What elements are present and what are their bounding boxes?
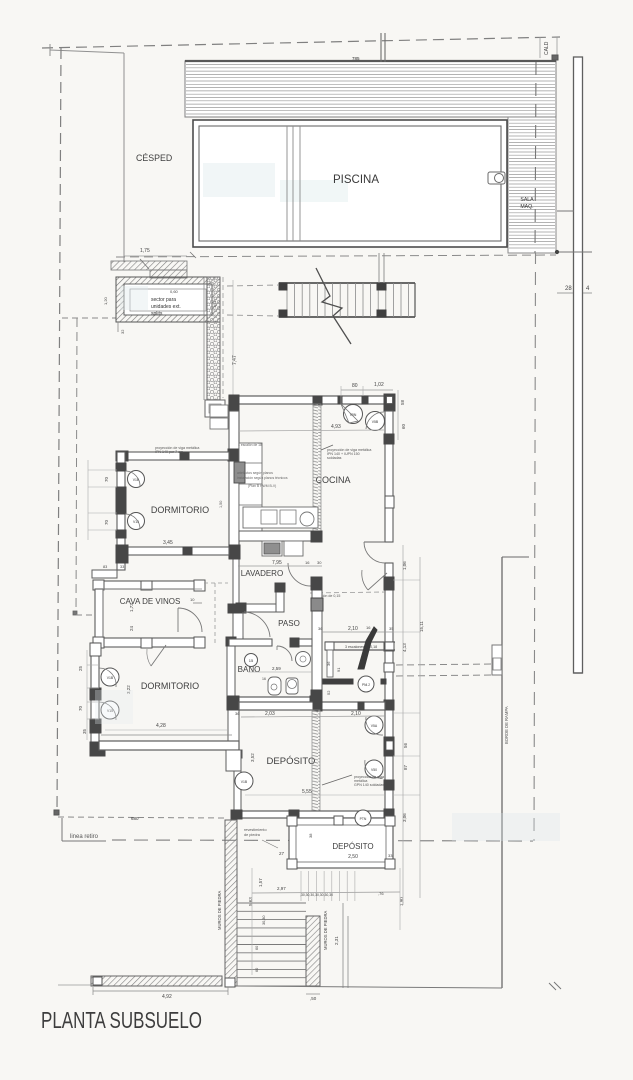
svg-text:35: 35 <box>82 728 87 734</box>
svg-text:32: 32 <box>120 329 125 334</box>
svg-text:LAVADERO: LAVADERO <box>241 569 283 578</box>
svg-text:1,75: 1,75 <box>140 248 150 254</box>
svg-text:V1B: V1B <box>107 676 114 680</box>
svg-text:SALA: SALA <box>520 197 534 203</box>
svg-text:0,60: 0,60 <box>170 289 179 294</box>
svg-text:58: 58 <box>400 399 405 405</box>
svg-text:CALD: CALD <box>544 41 550 55</box>
svg-text:DEPÓSITO: DEPÓSITO <box>267 756 316 767</box>
svg-text:70: 70 <box>104 519 109 525</box>
svg-text:,50: ,50 <box>310 996 317 1001</box>
svg-text:artefactos según planos: artefactos según planos <box>237 471 273 475</box>
svg-text:linea retiro: linea retiro <box>70 834 99 840</box>
svg-text:56: 56 <box>403 742 408 748</box>
svg-text:4,93: 4,93 <box>331 424 341 430</box>
svg-text:16: 16 <box>305 560 310 565</box>
svg-text:3 escalones de 0,18: 3 escalones de 0,18 <box>345 645 377 649</box>
svg-text:PASO: PASO <box>278 619 300 628</box>
svg-text:V50: V50 <box>371 768 377 772</box>
svg-text:unidades ext.: unidades ext. <box>151 304 181 310</box>
svg-text:(Plan B HWM B-V): (Plan B HWM B-V) <box>248 484 276 488</box>
svg-text:instalación según planos técni: instalación según planos técnicos <box>237 476 288 480</box>
svg-text:7,95: 7,95 <box>272 560 282 566</box>
svg-text:MUROS DE PIEDRA: MUROS DE PIEDRA <box>217 890 222 930</box>
svg-text:4,13: 4,13 <box>402 643 407 652</box>
svg-text:2,59: 2,59 <box>272 666 281 671</box>
svg-text:1,73: 1,73 <box>129 603 134 612</box>
svg-text:PISCINA: PISCINA <box>333 174 379 186</box>
svg-text:680: 680 <box>131 816 139 821</box>
svg-text:PLANTA SUBSUELO: PLANTA SUBSUELO <box>41 1007 202 1033</box>
svg-text:GPN 140 soldadas: GPN 140 soldadas <box>354 783 384 787</box>
svg-text:DORMITORIO: DORMITORIO <box>141 681 199 691</box>
svg-text:3,52: 3,52 <box>250 753 255 762</box>
svg-text:3,06: 3,06 <box>402 813 407 822</box>
svg-text:80: 80 <box>352 383 358 389</box>
svg-text:91: 91 <box>336 667 341 672</box>
svg-text:3,45: 3,45 <box>163 540 173 546</box>
svg-text:4,92: 4,92 <box>162 994 172 1000</box>
svg-text:33: 33 <box>388 853 393 858</box>
svg-text:70: 70 <box>78 705 83 711</box>
svg-text:785: 785 <box>352 56 360 61</box>
svg-text:30: 30 <box>317 560 322 565</box>
svg-text:5,55: 5,55 <box>302 789 312 795</box>
svg-text:38: 38 <box>308 833 313 838</box>
svg-text:1 escalón de 18: 1 escalón de 18 <box>238 443 262 447</box>
svg-text:MUROS DE PIEDRA: MUROS DE PIEDRA <box>323 910 328 950</box>
svg-text:soldadas: soldadas <box>327 456 342 460</box>
svg-text:27: 27 <box>279 851 285 856</box>
svg-text:60: 60 <box>401 423 406 429</box>
svg-text:2,31: 2,31 <box>334 936 339 945</box>
svg-text:1,06: 1,06 <box>402 561 407 570</box>
svg-text:15: 15 <box>249 658 254 663</box>
svg-text:revestimiento: revestimiento <box>244 828 267 832</box>
svg-text:30,30: 30,30 <box>262 915 266 925</box>
svg-text:1,57: 1,57 <box>258 878 263 887</box>
svg-text:15,11: 15,11 <box>419 621 424 632</box>
svg-text:2,50: 2,50 <box>348 854 358 860</box>
svg-text:60: 60 <box>255 968 259 972</box>
svg-text:CÉSPED: CÉSPED <box>136 153 172 163</box>
svg-text:sector para: sector para <box>151 297 176 303</box>
svg-text:24: 24 <box>129 625 134 631</box>
svg-text:52: 52 <box>326 690 331 695</box>
svg-text:V1B: V1B <box>241 780 248 784</box>
svg-text:DEPÓSITO: DEPÓSITO <box>332 842 373 851</box>
svg-text:IPN 140 por 7 cm: IPN 140 por 7 cm <box>155 450 183 454</box>
svg-text:PNI.2: PNI.2 <box>362 683 370 687</box>
svg-text:V5B: V5B <box>372 420 379 424</box>
svg-text:16: 16 <box>262 677 266 681</box>
svg-text:splits: splits <box>151 311 163 317</box>
svg-text:2,10: 2,10 <box>348 626 358 632</box>
svg-text:4: 4 <box>586 286 590 292</box>
svg-text:BORDE DE RAMPA: BORDE DE RAMPA <box>504 706 509 744</box>
svg-text:2,03: 2,03 <box>265 711 275 717</box>
svg-text:2,97: 2,97 <box>277 886 286 891</box>
svg-text:35: 35 <box>389 626 394 631</box>
svg-text:28: 28 <box>565 286 572 292</box>
svg-text:1,02: 1,02 <box>374 382 384 388</box>
svg-text:,76: ,76 <box>378 891 384 896</box>
svg-text:36: 36 <box>318 626 323 631</box>
svg-text:87: 87 <box>403 764 408 770</box>
svg-text:10: 10 <box>190 597 195 602</box>
svg-text:83: 83 <box>103 565 107 569</box>
svg-text:V5A: V5A <box>371 724 378 728</box>
svg-text:1,50: 1,50 <box>219 501 223 508</box>
svg-text:DORMITORIO: DORMITORIO <box>151 505 209 515</box>
svg-text:MAQ.: MAQ. <box>520 204 533 210</box>
svg-text:33: 33 <box>120 565 124 569</box>
svg-text:16: 16 <box>366 625 371 630</box>
svg-text:36: 36 <box>326 661 331 666</box>
svg-text:60: 60 <box>255 946 259 950</box>
svg-text:36: 36 <box>235 711 240 716</box>
svg-text:de piedra: de piedra <box>244 833 261 837</box>
svg-text:25: 25 <box>78 665 83 671</box>
svg-text:4,28: 4,28 <box>156 723 166 729</box>
svg-text:,30,30,30,30,30,30,30: ,30,30,30,30,30,30,30 <box>300 893 333 897</box>
svg-text:PTN: PTN <box>360 817 367 821</box>
svg-text:70: 70 <box>104 476 109 482</box>
svg-text:1,20: 1,20 <box>103 296 108 305</box>
